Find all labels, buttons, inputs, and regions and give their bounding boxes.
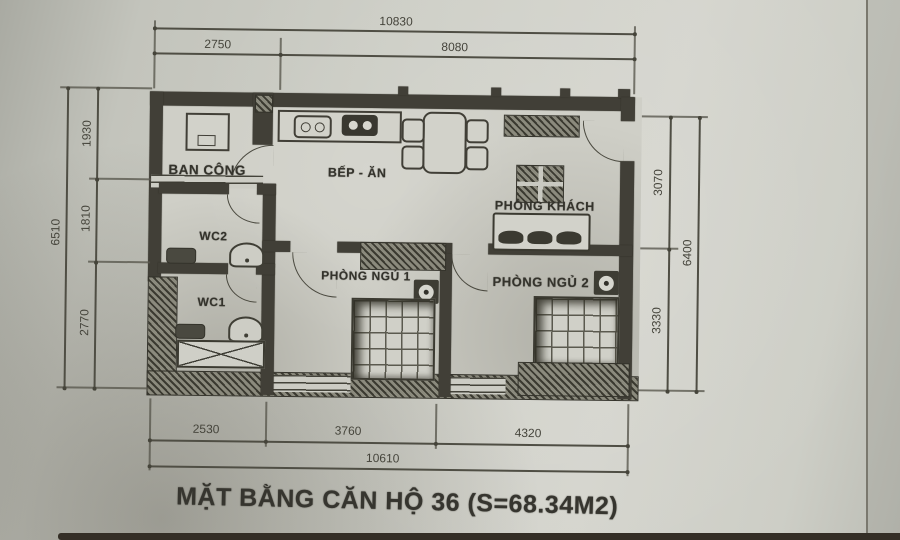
dim-tick	[148, 438, 152, 442]
dim-tick	[633, 57, 637, 61]
wardrobe-bedroom1	[360, 242, 446, 271]
sofa-cushion	[556, 231, 581, 244]
dim-tick	[66, 86, 70, 90]
room-label-kitchen-dining: BẾP - ĂN	[328, 166, 387, 181]
dim-tick	[626, 470, 630, 474]
lamp-dot	[424, 289, 429, 294]
dim-tick	[666, 389, 670, 393]
washing-machine-detail	[197, 135, 215, 146]
toilet-drain	[244, 333, 248, 337]
sink-basin	[301, 122, 311, 132]
wall-between-bedrooms	[438, 254, 452, 397]
dim-label-bottom-seg3: 4320	[515, 426, 542, 441]
dim-chain-right: 3070 3330 6400	[3, 0, 900, 6]
coffee-table	[516, 165, 564, 204]
bed-bedroom1	[351, 298, 436, 381]
dim-extension-line	[626, 404, 628, 476]
sofa	[492, 213, 590, 252]
bed-bedroom2	[533, 296, 620, 367]
dim-tick	[93, 386, 97, 390]
dim-line-bottom-overall	[150, 465, 628, 472]
stove-burner	[362, 121, 371, 130]
dim-tick	[264, 439, 268, 443]
dim-label-bottom-overall: 10610	[366, 451, 400, 466]
dim-label-left-seg3: 2770	[77, 309, 91, 336]
dim-line-right-segments	[667, 117, 672, 391]
technical-shaft	[177, 340, 265, 369]
dim-label-top-seg2: 8080	[441, 40, 468, 55]
furniture	[3, 0, 900, 6]
dim-line-left-segments	[94, 88, 99, 388]
stove-burner	[348, 121, 357, 130]
dim-line-left-overall	[64, 87, 69, 387]
wc2-sink	[166, 248, 196, 264]
lamp-circle	[419, 284, 434, 299]
wc1-sink	[175, 324, 205, 339]
sink-basin	[315, 122, 325, 132]
dim-tick	[153, 26, 157, 30]
toilet-drain	[245, 258, 249, 262]
room-label-wc1: WC1	[197, 295, 225, 309]
dim-tick	[695, 389, 699, 393]
plan-title: MẶT BẰNG CĂN HỘ 36 (S=68.34M2)	[167, 482, 628, 521]
dining-chair	[465, 146, 488, 170]
scanned-floor-plan-photo: BAN CÔNG BẾP - ĂN PHÒNG KHÁCH WC2 WC1 PH…	[0, 0, 900, 540]
dim-tick	[94, 260, 98, 264]
dim-tick	[669, 115, 673, 119]
room-label-balcony: BAN CÔNG	[168, 162, 246, 178]
dining-chair	[402, 118, 425, 142]
dim-tick	[698, 116, 702, 120]
tv-cabinet	[504, 115, 580, 138]
photo-bottom-edge	[58, 533, 900, 540]
dim-label-left-overall: 6510	[48, 219, 62, 246]
wall-wc2-north-b	[257, 184, 276, 195]
wall-column-bump	[560, 88, 570, 97]
sofa-cushion	[527, 231, 552, 244]
dim-extension-line	[60, 86, 152, 89]
wall-right-upper	[621, 97, 635, 121]
dining-table	[422, 112, 467, 175]
dim-label-bottom-seg1: 2530	[193, 422, 220, 437]
dim-chain-top: 10830 2750 8080	[3, 0, 900, 6]
wall-wc-divider-a	[158, 262, 228, 274]
dim-label-right-overall: 6400	[680, 239, 694, 266]
dim-extension-line	[279, 38, 281, 90]
dim-line-bottom-segments	[150, 439, 628, 446]
kitchen-sink	[294, 115, 332, 138]
wc2-toilet	[229, 242, 264, 267]
room-label-wc2: WC2	[199, 229, 227, 243]
room-label-bedroom2: PHÒNG NGỦ 2	[493, 274, 590, 290]
paper-outside-area	[868, 0, 900, 540]
wall-balcony-divider-hatch	[255, 95, 273, 113]
wall-wc2-north-a	[159, 182, 229, 194]
bedside-table-lamp	[594, 271, 619, 295]
dim-label-right-seg2: 3330	[649, 307, 663, 334]
sofa-cushion	[498, 231, 523, 244]
dim-tick	[96, 86, 100, 90]
dim-line-right-overall	[696, 117, 701, 391]
dim-label-right-seg1: 3070	[651, 169, 665, 196]
lamp-circle	[599, 275, 614, 290]
dim-label-left-seg2: 1810	[78, 205, 92, 232]
dim-tick	[626, 444, 630, 448]
dim-label-left-seg1: 1930	[79, 120, 93, 147]
wall-mid-a	[262, 241, 290, 252]
dim-tick	[279, 52, 283, 56]
dim-extension-line	[149, 398, 151, 470]
dim-line-top-segments	[155, 52, 635, 59]
dining-chair	[466, 119, 489, 143]
dim-tick	[667, 247, 671, 251]
dim-tick	[153, 51, 157, 55]
dim-chain-bottom: 2530 3760 4320 10610	[3, 0, 900, 6]
window-bedroom1	[266, 375, 350, 393]
dim-tick	[148, 464, 152, 468]
dim-tick	[434, 441, 438, 445]
dim-label-top-seg1: 2750	[204, 37, 231, 52]
dim-tick	[63, 386, 67, 390]
room-label-bedroom1: PHÒNG NGỦ 1	[321, 268, 411, 283]
washing-machine	[185, 113, 229, 152]
dim-extension-line	[57, 386, 149, 389]
dim-chain-left: 6510 1930 1810 2770	[3, 0, 900, 6]
window-bedroom2	[445, 377, 505, 395]
wall-column-bump	[491, 87, 501, 96]
bench-bedroom2	[517, 362, 629, 397]
plan-walls	[3, 0, 900, 6]
dim-extension-line	[640, 247, 678, 249]
dim-tick	[633, 32, 637, 36]
dim-label-bottom-seg2: 3760	[335, 423, 362, 438]
dim-tick	[95, 177, 99, 181]
wall-column-bump	[398, 86, 408, 95]
room-label-living-room: PHÒNG KHÁCH	[495, 199, 595, 214]
dining-chair	[401, 145, 424, 169]
floor-plan-sheet: BAN CÔNG BẾP - ĂN PHÒNG KHÁCH WC2 WC1 PH…	[0, 0, 900, 540]
dim-label-top-overall: 10830	[379, 14, 413, 29]
lamp-dot	[604, 280, 609, 285]
wc1-toilet	[228, 316, 263, 342]
dim-line-top-overall	[155, 27, 635, 34]
stove	[342, 115, 378, 136]
